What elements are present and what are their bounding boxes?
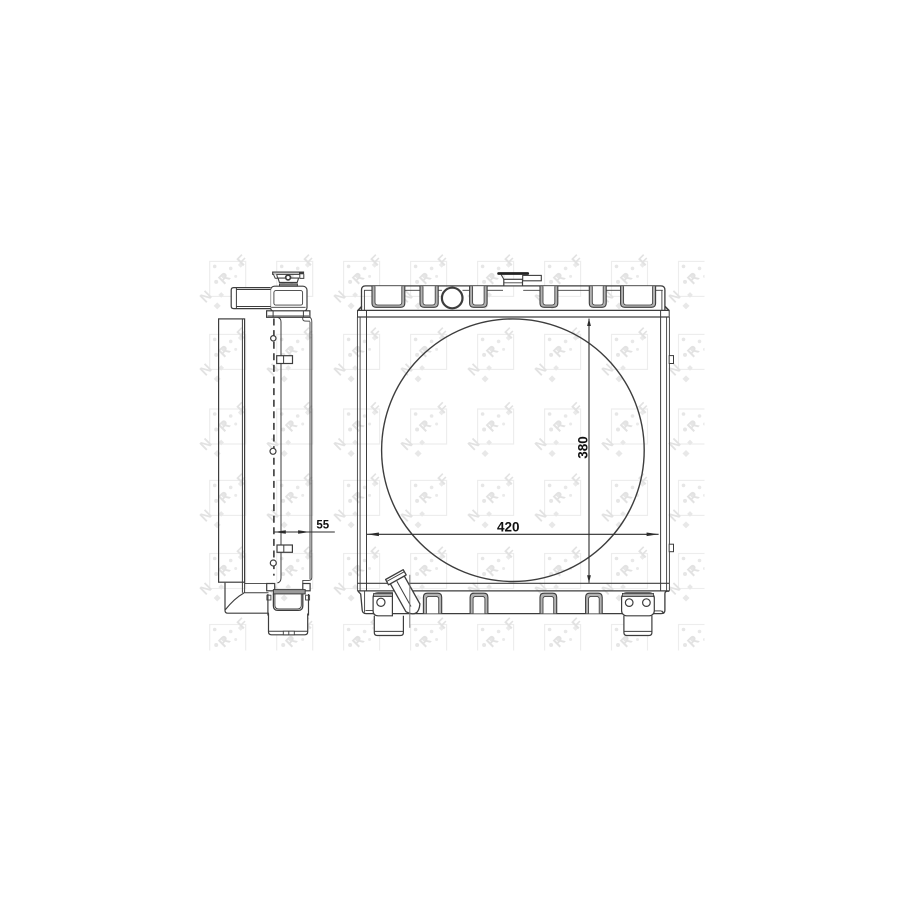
svg-text:380: 380 [576,436,591,459]
svg-text:55: 55 [316,520,329,532]
svg-text:420: 420 [497,520,520,535]
